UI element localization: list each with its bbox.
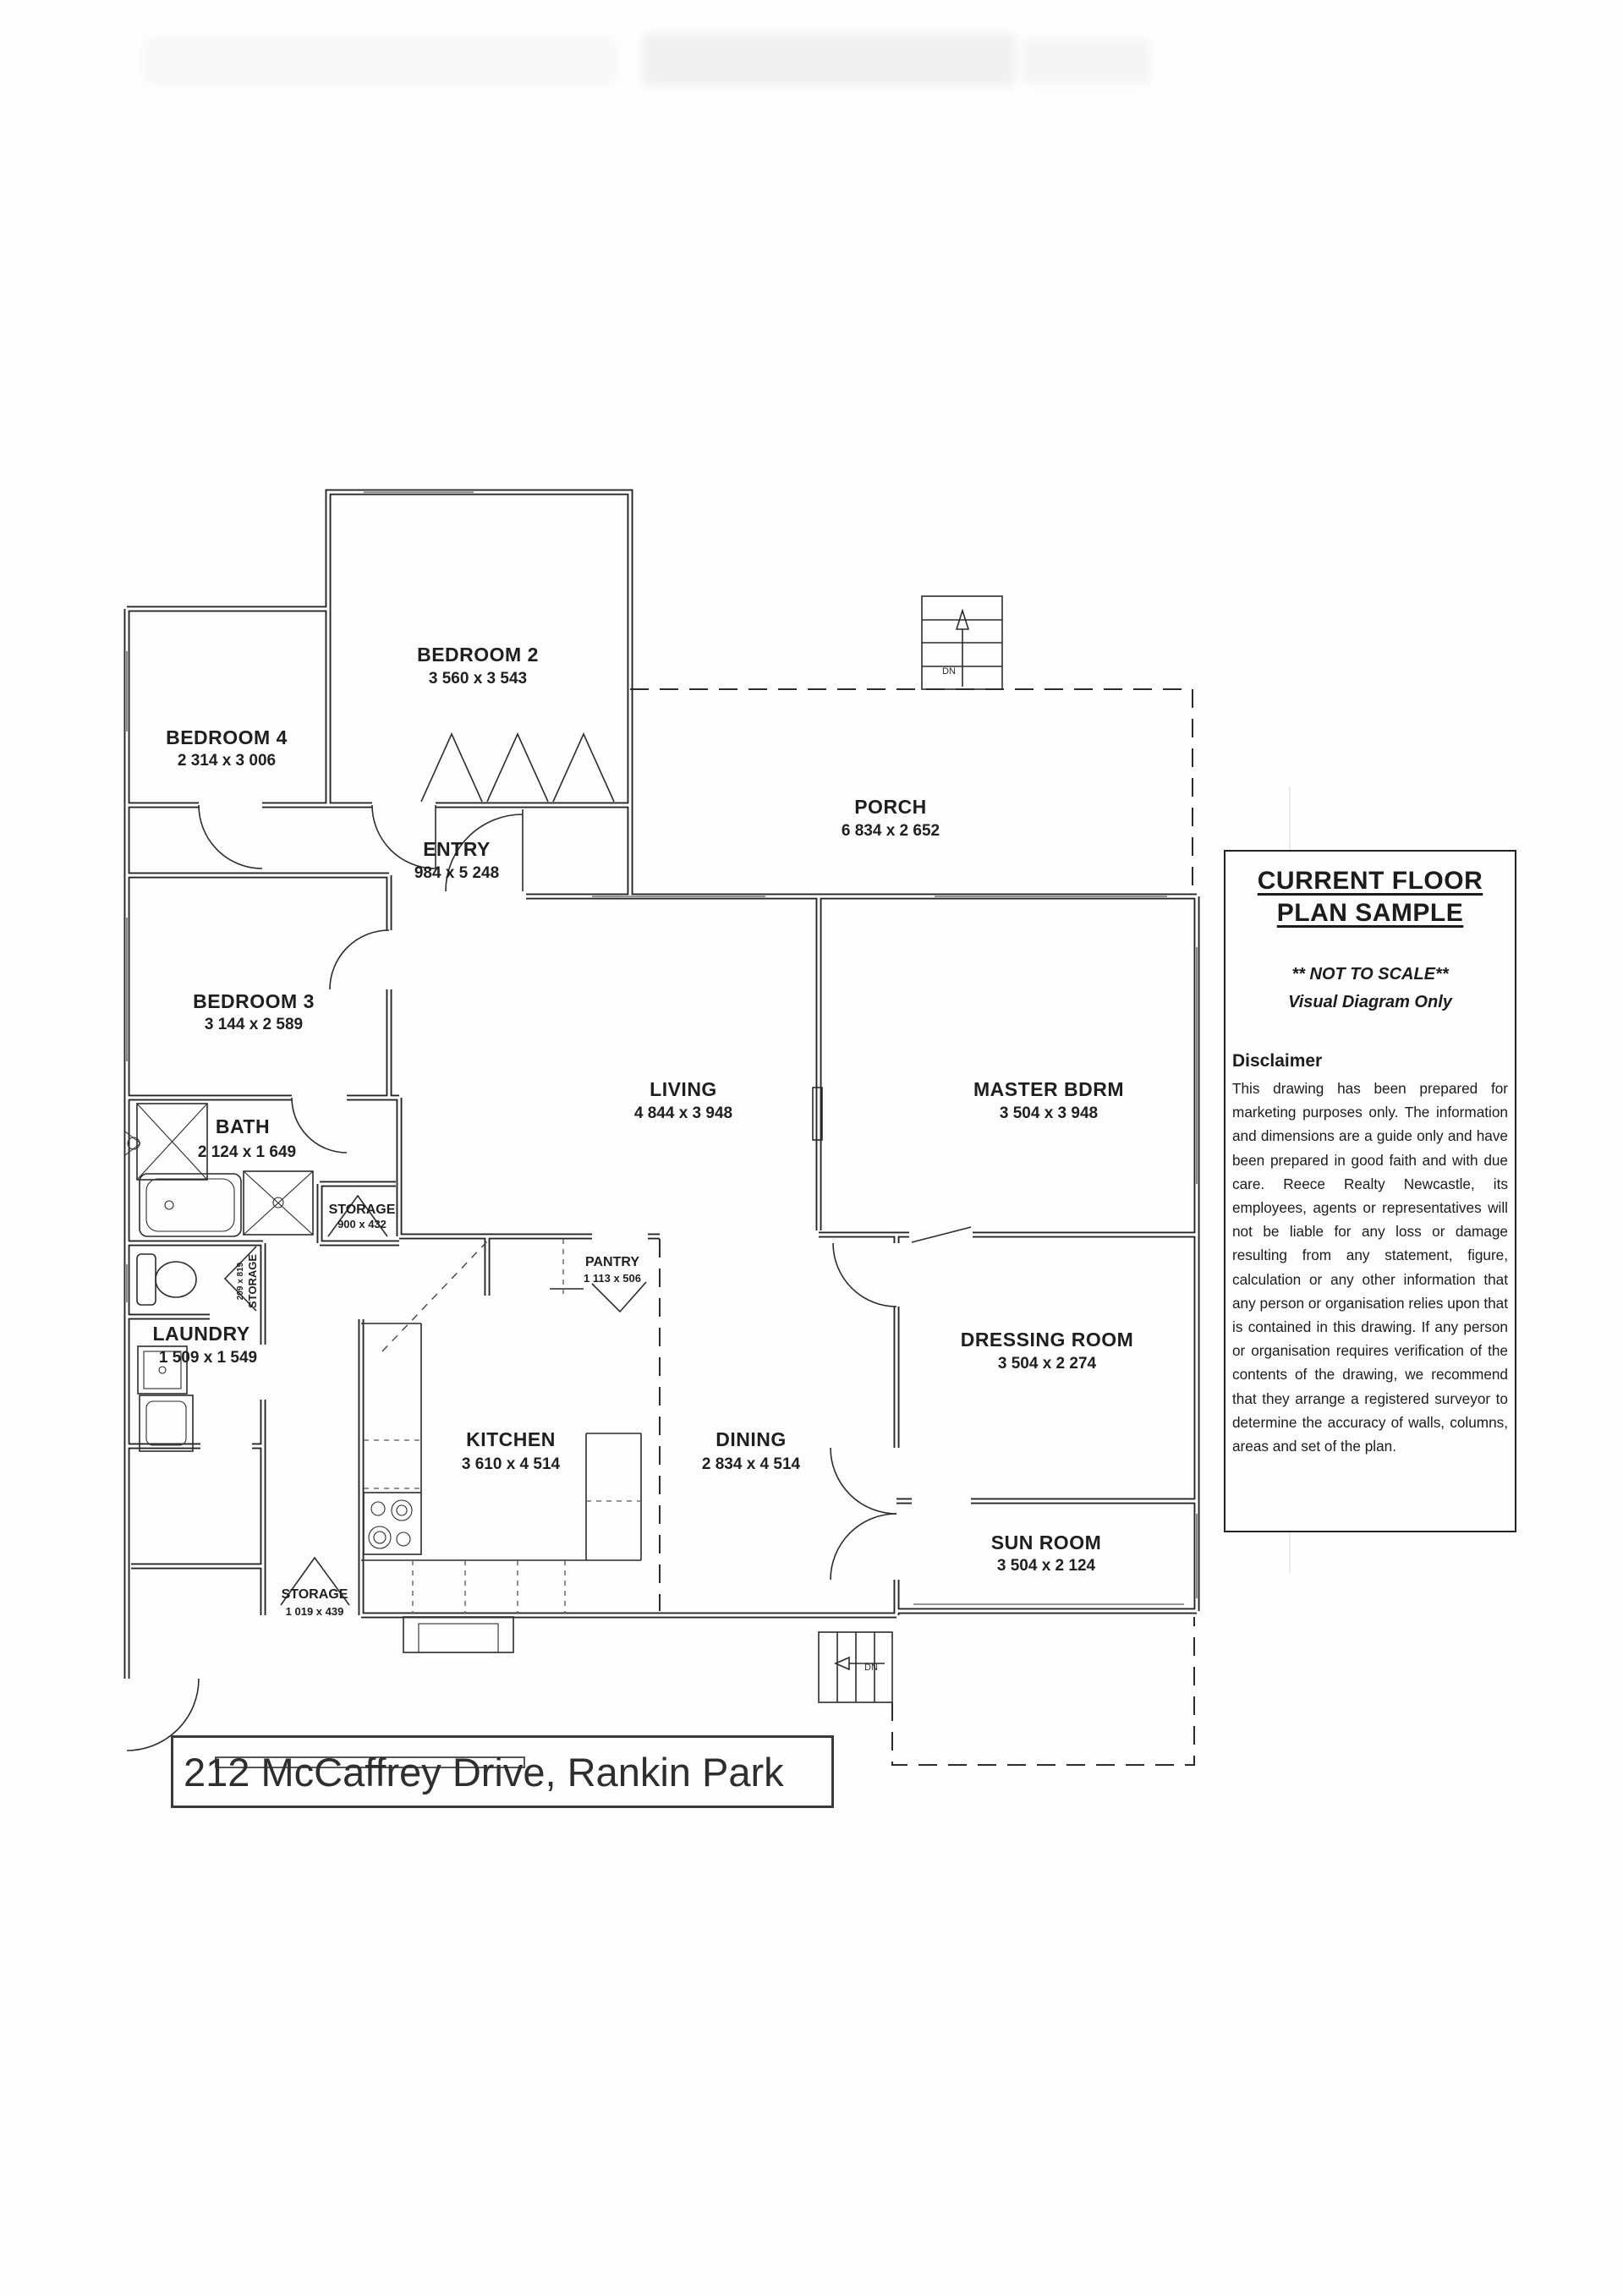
property-address: 212 McCaffrey Drive, Rankin Park <box>171 1735 834 1808</box>
room-dims-dining: 2 834 x 4 514 <box>702 1455 801 1473</box>
panel-title-line1: CURRENT FLOOR <box>1258 867 1483 895</box>
room-dims-bedroom3: 3 144 x 2 589 <box>205 1016 303 1033</box>
stairs-top-dn-label: DN <box>942 666 956 677</box>
room-dims-storage-hall: 209 x 819 <box>236 1262 245 1300</box>
room-label-storage-hall: STORAGE <box>246 1254 259 1308</box>
patio-dashed-boundary <box>892 1617 1194 1765</box>
window-lines <box>127 492 1197 1604</box>
room-dims-porch: 6 834 x 2 652 <box>842 822 940 840</box>
room-dims-dressing: 3 504 x 2 274 <box>998 1355 1097 1373</box>
scanned-floor-plan-page: DN DN <box>0 0 1623 2296</box>
pantry-details <box>550 1239 584 1294</box>
room-label-bedroom4: BEDROOM 4 <box>166 726 288 748</box>
room-dims-entry: 984 x 5 248 <box>414 864 499 882</box>
room-label-pantry: PANTRY <box>585 1255 639 1269</box>
room-dims-bedroom4: 2 314 x 3 006 <box>178 752 276 770</box>
room-label-bath: BATH <box>216 1115 270 1137</box>
room-label-living: LIVING <box>650 1078 717 1100</box>
room-dims-sunroom: 3 504 x 2 124 <box>997 1557 1096 1575</box>
disclaimer-heading: Disclaimer <box>1232 1051 1508 1071</box>
room-label-sunroom: SUN ROOM <box>991 1532 1102 1553</box>
room-label-laundry: LAUNDRY <box>152 1323 249 1345</box>
room-label-porch: PORCH <box>854 796 927 818</box>
room-dims-laundry: 1 509 x 1 549 <box>159 1349 257 1367</box>
washing-machine <box>140 1395 193 1451</box>
not-to-scale-note: ** NOT TO SCALE** <box>1232 965 1508 984</box>
panel-title-line2: PLAN SAMPLE <box>1277 899 1464 927</box>
room-dims-storage-rear: 1 019 x 439 <box>286 1605 344 1618</box>
room-dims-living: 4 844 x 3 948 <box>634 1104 732 1122</box>
info-panel: CURRENT FLOOR PLAN SAMPLE ** NOT TO SCAL… <box>1224 850 1516 1532</box>
room-label-bedroom2: BEDROOM 2 <box>417 644 539 666</box>
shower <box>244 1171 313 1235</box>
room-dims-bedroom2: 3 560 x 3 543 <box>429 670 527 688</box>
room-label-master: MASTER BDRM <box>973 1078 1124 1100</box>
disclaimer-text: This drawing has been prepared for marke… <box>1232 1077 1508 1458</box>
room-label-kitchen: KITCHEN <box>466 1428 556 1450</box>
room-label-dressing: DRESSING ROOM <box>961 1329 1134 1351</box>
panel-title: CURRENT FLOOR PLAN SAMPLE <box>1232 865 1508 929</box>
room-label-storage-bath: STORAGE <box>329 1203 396 1217</box>
toilet <box>137 1254 196 1305</box>
room-label-storage-rear: STORAGE <box>282 1587 348 1602</box>
porch-dashed-boundary <box>630 689 1193 895</box>
stairs-rear-dn-label: DN <box>864 1663 878 1673</box>
room-label-bedroom3: BEDROOM 3 <box>193 990 315 1012</box>
stairs-rear: DN <box>819 1632 892 1702</box>
bath-vanity <box>125 1104 207 1180</box>
stove <box>364 1493 421 1554</box>
room-labels: BEDROOM 2 3 560 x 3 543 BEDROOM 4 2 314 … <box>152 644 1133 1618</box>
kitchen-diagonal-dashed <box>382 1241 487 1351</box>
room-dims-storage-bath: 900 x 432 <box>337 1218 387 1230</box>
room-dims-pantry: 1 113 x 506 <box>584 1272 641 1285</box>
room-label-dining: DINING <box>716 1428 787 1450</box>
room-label-entry: ENTRY <box>423 838 491 860</box>
room-dims-master: 3 504 x 3 948 <box>1000 1104 1098 1122</box>
room-dims-kitchen: 3 610 x 4 514 <box>462 1455 561 1473</box>
visual-diagram-note: Visual Diagram Only <box>1232 993 1508 1012</box>
room-dims-bath: 2 124 x 1 649 <box>198 1143 296 1161</box>
bathtub <box>140 1174 241 1236</box>
stairs-top: DN <box>922 596 1002 689</box>
